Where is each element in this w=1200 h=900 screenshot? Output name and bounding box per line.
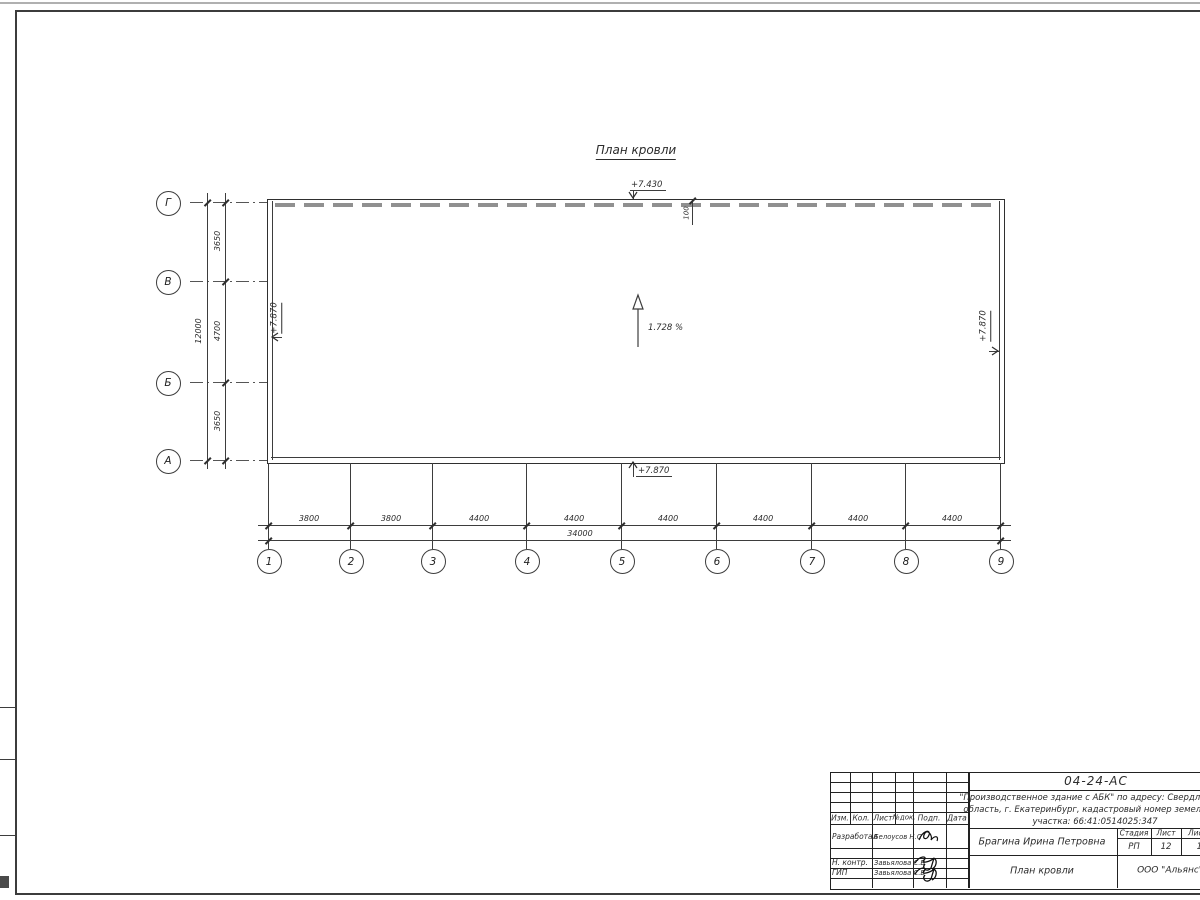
elevation-arrow-icon [628,191,638,199]
axis-line [268,463,269,549]
margin-tick [0,707,15,708]
rev-col-header: Лист [873,814,892,822]
role-label: Н. контр. [832,859,868,867]
elevation-bottom-text: +7.870 [638,467,669,476]
organization: ООО "Альянс" [1137,867,1200,876]
dim-line-bottom-total [258,540,1011,541]
dim-text-total: 34000 [567,530,592,538]
dim-text: 4400 [469,515,489,523]
dim-text-total: 12000 [195,318,203,343]
stage-header: Листов [1188,829,1200,837]
axis-line [811,463,812,549]
axis-bubble: Б [156,371,181,396]
dim-text: 4400 [564,515,584,523]
project-description-line: участка: 66:41:0514025:347 [1032,818,1157,827]
signature-icon [912,864,946,882]
axis-line [350,463,351,549]
axis-bubble: 9 [989,549,1014,574]
wall-inner-bottom [271,457,1001,458]
project-description-line: "Производственное здание с АБК" по адрес… [959,794,1200,803]
elevation-left-text: +7.870 [270,302,282,333]
parapet-dim-line [692,200,693,225]
axis-bubble: 8 [894,549,919,574]
axis-line [1000,463,1001,549]
sheet: План кровли 100 1.728 % +7.430 +7.870 +7… [0,0,1200,900]
dim-text: 4400 [753,515,773,523]
stage-header: Стадия [1120,829,1149,837]
role-name: Белоусов Н.С [874,834,921,841]
axis-bubble: 3 [421,549,446,574]
axis-bubble: 5 [610,549,635,574]
role-label: ГИП [832,869,847,877]
dim-text: 4700 [214,321,222,341]
dim-text: 4400 [848,515,868,523]
parapet-dim-text: 100 [684,206,691,219]
axis-line [716,463,717,549]
elevation-right-text: +7.870 [979,310,991,341]
rev-col-header: Подп. [918,814,941,822]
elevation-arrow-icon [628,461,638,469]
axis-bubble: 6 [705,549,730,574]
axis-line [190,202,267,203]
elevation-arrow-icon [991,346,999,356]
axis-bubble: 7 [800,549,825,574]
slope-label: 1.728 % [648,324,683,333]
axis-line [526,463,527,549]
elevation-bottom-underline [636,476,672,477]
stage-value: РП [1128,843,1140,852]
dim-text: 3800 [381,515,401,523]
stage-header: Лист [1156,829,1175,837]
doc-number: 04-24-АС [1064,775,1128,787]
rev-col-header: Кол. [852,814,869,822]
client-name: Брагина Ирина Петровна [979,837,1106,847]
axis-bubble: А [156,449,181,474]
margin-corner-mark [0,876,9,888]
elevation-top-text: +7.430 [631,181,662,190]
dim-line-left [225,193,226,469]
margin-tick [0,759,15,760]
rev-col-header: Изм. [831,814,849,822]
axis-bubble: Г [156,191,181,216]
elevation-arrow-icon [271,332,279,342]
axis-bubble: В [156,270,181,295]
axis-bubble: 2 [339,549,364,574]
axis-line [190,281,267,282]
stage-value: 13 [1197,843,1200,852]
dim-text: 3650 [214,231,222,251]
project-description-line: область, г. Екатеринбург, кадастровый но… [963,806,1200,815]
parapet-dashed-line [275,203,995,207]
margin-tick [0,835,15,836]
axis-bubble: 1 [257,549,282,574]
axis-line [432,463,433,549]
axis-line [190,460,267,461]
wall-inner-right [999,201,1000,460]
rev-col-header: Дата [947,814,966,822]
dim-line-left-total [207,193,208,469]
dim-text: 3650 [214,411,222,431]
axis-line [190,382,267,383]
axis-line [905,463,906,549]
sheet-title: План кровли [1010,866,1074,876]
drawing-title: План кровли [596,144,676,160]
dim-line-bottom [258,525,1011,526]
rev-col-header: №док. [893,815,916,822]
dim-text: 4400 [942,515,962,523]
slope-arrow [630,293,646,349]
axis-bubble: 4 [515,549,540,574]
page-edge-line [0,2,1200,4]
dim-text: 3800 [299,515,319,523]
role-label: Разработал [832,833,877,841]
axis-line [621,463,622,549]
signature-icon [916,827,944,845]
dim-text: 4400 [658,515,678,523]
stage-value: 12 [1161,843,1172,852]
